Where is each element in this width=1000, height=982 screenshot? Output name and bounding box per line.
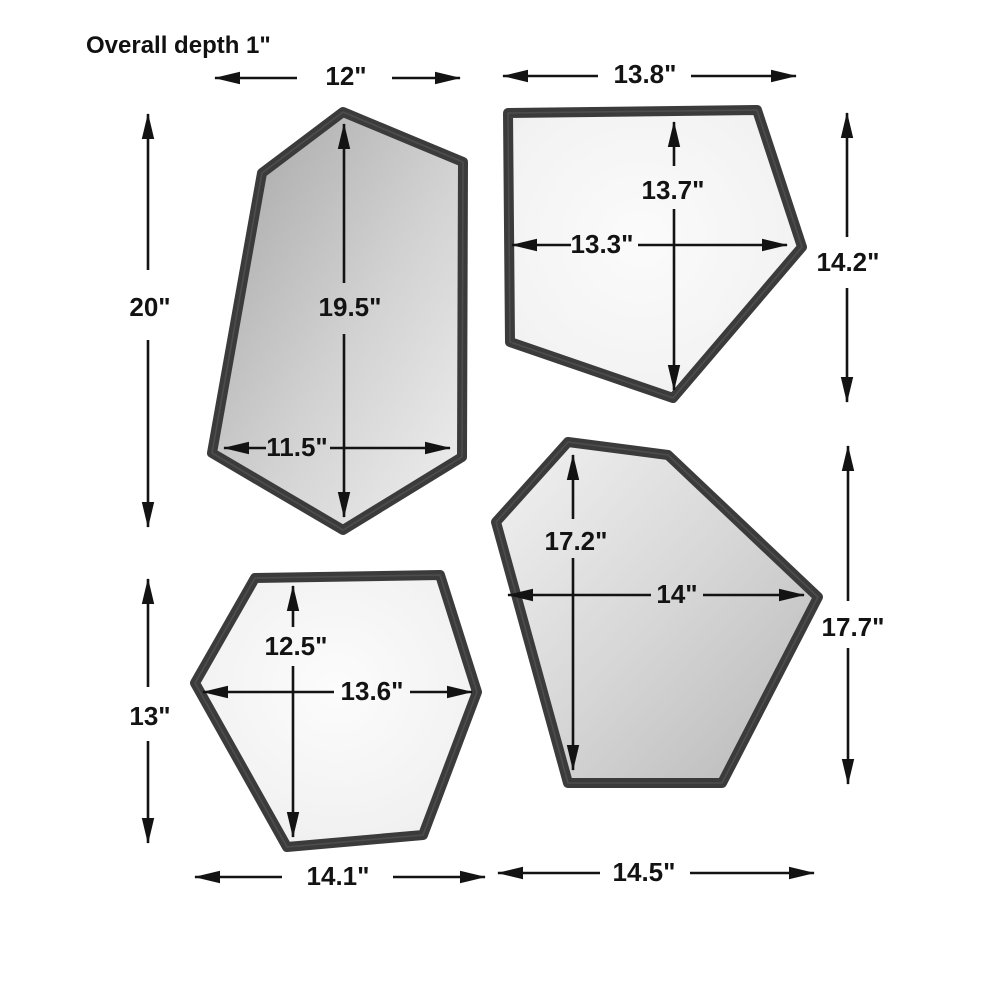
bottom-left-inner-height-label: 12.5" (265, 631, 328, 661)
top-left-inner-height-label: 19.5" (319, 292, 382, 322)
bottom-left-height-label: 13" (129, 701, 170, 731)
diagram-canvas: Overall depth 1" 12" 20" 19.5" 11.5" 13.… (0, 0, 1000, 982)
bottom-left-width-label: 14.1" (307, 861, 370, 891)
top-left-width-label: 12" (325, 61, 366, 91)
top-right-mirror-frame (508, 110, 802, 398)
bottom-right-inner-height-label: 17.2" (545, 526, 608, 556)
top-left-mirror: 12" 20" 19.5" 11.5" (129, 61, 463, 530)
top-right-width-label: 13.8" (614, 59, 677, 89)
top-left-inner-width-label: 11.5" (266, 432, 328, 462)
bottom-right-width-label: 14.5" (613, 857, 676, 887)
bottom-right-mirror-frame (496, 442, 818, 783)
top-left-height-label: 20" (129, 292, 170, 322)
top-right-height-label: 14.2" (817, 247, 880, 277)
bottom-right-height-label: 17.7" (822, 612, 885, 642)
bottom-left-inner-width-label: 13.6" (341, 676, 404, 706)
overall-depth-note: Overall depth 1" (86, 32, 271, 59)
mirror-dimension-diagram: Overall depth 1" 12" 20" 19.5" 11.5" 13.… (0, 0, 1000, 982)
top-right-inner-width-label: 13.3" (571, 229, 634, 259)
bottom-left-mirror: 13" 14.1" 12.5" 13.6" (129, 575, 485, 891)
bottom-right-inner-width-label: 14" (656, 579, 697, 609)
top-right-inner-height-label: 13.7" (642, 175, 705, 205)
bottom-right-mirror: 14.5" 17.7" 17.2" 14" (496, 442, 884, 887)
top-right-mirror: 13.8" 14.2" 13.7" 13.3" (503, 59, 879, 402)
